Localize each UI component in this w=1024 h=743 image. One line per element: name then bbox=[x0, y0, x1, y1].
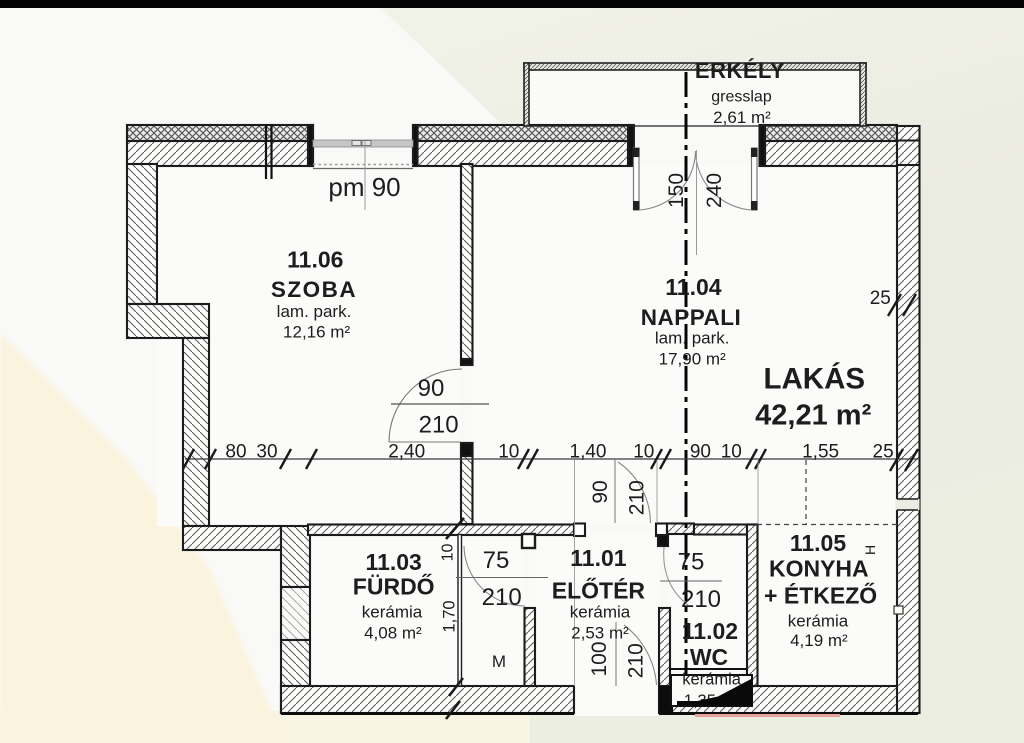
svg-text:240: 240 bbox=[703, 173, 726, 208]
svg-text:WC: WC bbox=[690, 644, 728, 670]
svg-text:11.01: 11.01 bbox=[570, 545, 626, 571]
svg-text:kerámia: kerámia bbox=[682, 671, 742, 689]
svg-text:11.02: 11.02 bbox=[682, 618, 738, 644]
svg-text:KONYHA: KONYHA bbox=[769, 556, 869, 582]
svg-text:2,53 m²: 2,53 m² bbox=[571, 624, 629, 643]
svg-text:210: 210 bbox=[419, 412, 459, 439]
svg-text:4,08 m²: 4,08 m² bbox=[364, 624, 422, 643]
svg-text:30: 30 bbox=[256, 442, 277, 463]
svg-text:lam. park.: lam. park. bbox=[277, 302, 352, 321]
svg-text:kerámia: kerámia bbox=[570, 603, 631, 622]
svg-text:210: 210 bbox=[482, 584, 522, 611]
svg-text:42,21 m²: 42,21 m² bbox=[755, 400, 871, 432]
svg-text:gresslap: gresslap bbox=[711, 89, 772, 106]
svg-text:+ ÉTKEZŐ: + ÉTKEZŐ bbox=[764, 582, 877, 609]
svg-text:ELŐTÉR: ELŐTÉR bbox=[552, 577, 646, 604]
svg-text:M: M bbox=[492, 652, 506, 671]
svg-text:11.05: 11.05 bbox=[790, 530, 846, 556]
svg-text:25: 25 bbox=[873, 442, 894, 463]
svg-text:10: 10 bbox=[633, 442, 654, 463]
svg-text:10: 10 bbox=[721, 442, 742, 463]
svg-text:11.03: 11.03 bbox=[366, 549, 422, 575]
svg-text:10: 10 bbox=[498, 442, 519, 463]
svg-text:10: 10 bbox=[440, 544, 457, 562]
svg-text:210: 210 bbox=[625, 643, 648, 678]
svg-text:kerámia: kerámia bbox=[362, 603, 423, 622]
svg-text:4,19 m²: 4,19 m² bbox=[790, 631, 848, 650]
svg-text:100: 100 bbox=[588, 641, 611, 676]
svg-text:FÜRDŐ: FÜRDŐ bbox=[353, 573, 435, 600]
svg-text:90: 90 bbox=[418, 375, 445, 402]
svg-text:1,55: 1,55 bbox=[802, 442, 839, 463]
svg-text:80: 80 bbox=[225, 442, 246, 463]
svg-text:pm 90: pm 90 bbox=[328, 172, 400, 202]
svg-text:210: 210 bbox=[681, 586, 721, 613]
svg-text:1,40: 1,40 bbox=[570, 442, 607, 463]
svg-text:210: 210 bbox=[626, 480, 649, 515]
svg-text:75: 75 bbox=[483, 547, 510, 574]
svg-text:kerámia: kerámia bbox=[788, 612, 849, 631]
svg-text:25: 25 bbox=[870, 288, 891, 309]
svg-text:75: 75 bbox=[678, 549, 705, 576]
svg-text:2,40: 2,40 bbox=[388, 442, 425, 463]
svg-text:NAPPALI: NAPPALI bbox=[641, 305, 742, 330]
svg-text:1,70: 1,70 bbox=[441, 600, 459, 632]
svg-text:11.06: 11.06 bbox=[287, 247, 343, 273]
svg-text:H: H bbox=[862, 545, 878, 555]
svg-text:90: 90 bbox=[690, 442, 711, 463]
svg-text:12,16 m²: 12,16 m² bbox=[283, 323, 350, 342]
svg-text:90: 90 bbox=[589, 480, 612, 503]
svg-text:SZOBA: SZOBA bbox=[271, 277, 357, 302]
svg-text:17,90 m²: 17,90 m² bbox=[659, 350, 726, 369]
svg-text:150: 150 bbox=[665, 173, 688, 208]
svg-text:11.04: 11.04 bbox=[665, 274, 721, 300]
svg-text:LAKÁS: LAKÁS bbox=[763, 362, 865, 396]
svg-text:ERKÉLY: ERKÉLY bbox=[695, 58, 785, 83]
svg-text:lam. park.: lam. park. bbox=[655, 329, 730, 348]
svg-text:2,61 m²: 2,61 m² bbox=[713, 108, 771, 127]
